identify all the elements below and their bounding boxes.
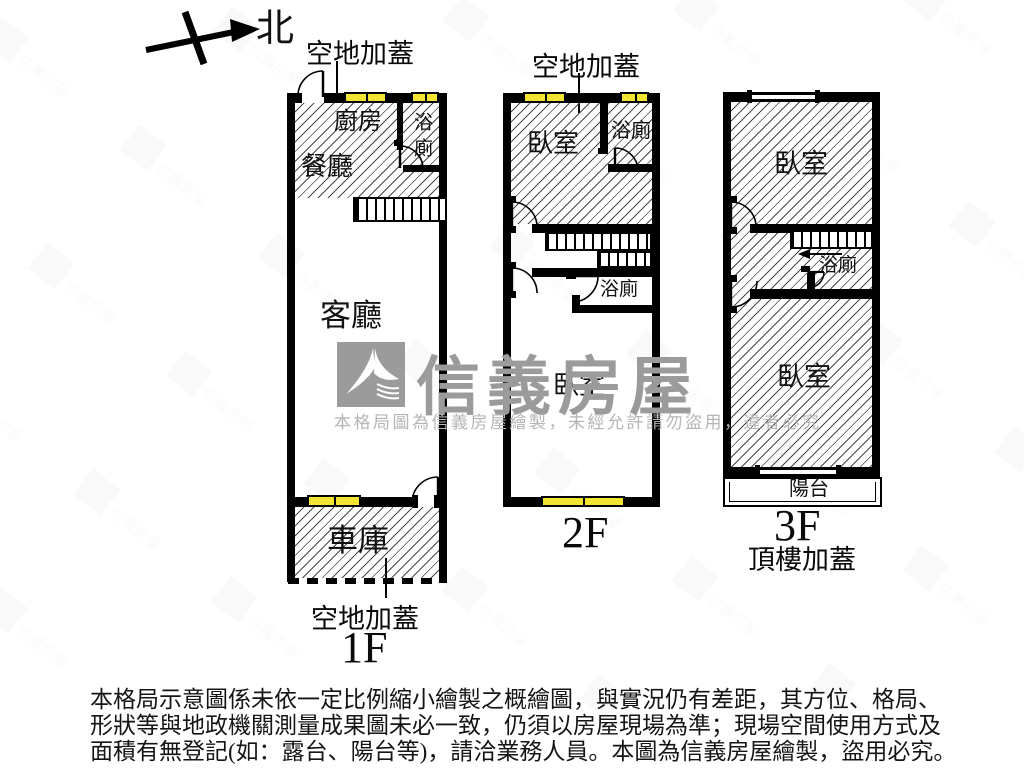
window-pane-divider [583, 498, 585, 505]
f2-window-top-1 [523, 92, 566, 103]
f3-wall-right [872, 92, 880, 477]
f1-garage-door [411, 475, 441, 505]
f2-annotation-top: 空地加蓋 [532, 45, 640, 84]
f1-floor-label: 1F [341, 622, 387, 673]
f1-kitchen-label: 廚房 [334, 110, 382, 135]
f3-bedroom-rear-label: 臥室 [777, 363, 831, 391]
f2-bath-mid-wall-bottom [572, 305, 660, 313]
f2-wall-left [503, 93, 511, 507]
f2-stairs-lower [597, 251, 652, 268]
compass-north-label: 北 [256, 10, 294, 50]
f1-window-top-1 [344, 92, 387, 103]
window-pane-divider [334, 497, 336, 505]
f2-bath-front-door [610, 145, 644, 175]
floorplan-canvas: 信義房屋 北 空地加蓋 廚房 浴廁 餐廳 客廳 [0, 0, 1024, 768]
f1-stairs [353, 197, 447, 222]
f1-garage-label: 車庫 [327, 525, 389, 558]
window-pane-divider [425, 94, 427, 101]
f1-wall-left [287, 93, 295, 582]
f3-window-top [752, 93, 816, 101]
f3-landing-door-1 [729, 200, 759, 230]
f2-window-top-2 [620, 92, 649, 103]
sinyi-logo [337, 342, 405, 407]
f3-wall-lower-mid [750, 289, 880, 299]
f1-window-top-2 [411, 92, 439, 103]
f2-bath-divider [600, 103, 608, 153]
window-pane-divider [545, 94, 547, 101]
f2-landing-door-2 [510, 266, 540, 296]
f1-entry-door [296, 68, 328, 100]
f2-bath-front-label: 浴廁 [611, 121, 651, 142]
f3-bath-label: 浴廁 [819, 256, 857, 276]
f2-window-bottom [541, 496, 625, 507]
f1-window-garage [307, 495, 361, 507]
f1-annotation-top: 空地加蓋 [306, 32, 414, 71]
f3-bedroom-front-label: 臥室 [774, 150, 828, 178]
f3-landing-door-2 [729, 279, 759, 309]
compass-north-icon [138, 6, 268, 68]
f2-bath-mid-label: 浴廁 [600, 280, 638, 300]
window-pane-divider [635, 94, 637, 101]
watermark-notice-text: 本格局圖為信義房屋繪製，未經允許請勿盜用，違者必究 [334, 408, 822, 433]
f2-landing-door-1 [510, 200, 540, 230]
f1-dashed-boundary [288, 578, 440, 584]
f2-floor-label: 2F [562, 507, 608, 558]
f2-bedroom-front-label: 臥室 [527, 130, 579, 157]
f1-dining-label: 餐廳 [301, 153, 353, 180]
f1-living-label: 客廳 [320, 300, 382, 333]
f3-annotation-bottom: 頂樓加蓋 [748, 538, 856, 577]
f2-bath-door-hinge [598, 148, 608, 154]
window-pane-divider [366, 94, 368, 101]
f1-annotation-bottom-leader [385, 558, 387, 598]
f1-bath-label: 浴廁 [411, 112, 431, 164]
f3-balcony-label: 陽台 [786, 479, 832, 500]
disclaimer-line-3: 面積有無登記(如：露台、陽台等)，請洽業務人員。本圖為信義房屋繪製，盜用必究。 [90, 739, 956, 765]
disclaimer-line-1: 本格局示意圖係未依一定比例縮小繪製之概繪圖，與實況仍有差距，其方位、格局、 [90, 687, 941, 713]
f2-stairs-upper [545, 232, 652, 251]
f3-window-bottom [760, 468, 838, 476]
disclaimer-line-2: 形狀等與地政機關測量成果圖未必一致，仍須以房屋現場為準；現場空間使用方式及 [90, 713, 941, 739]
f2-wall-right [652, 93, 660, 507]
